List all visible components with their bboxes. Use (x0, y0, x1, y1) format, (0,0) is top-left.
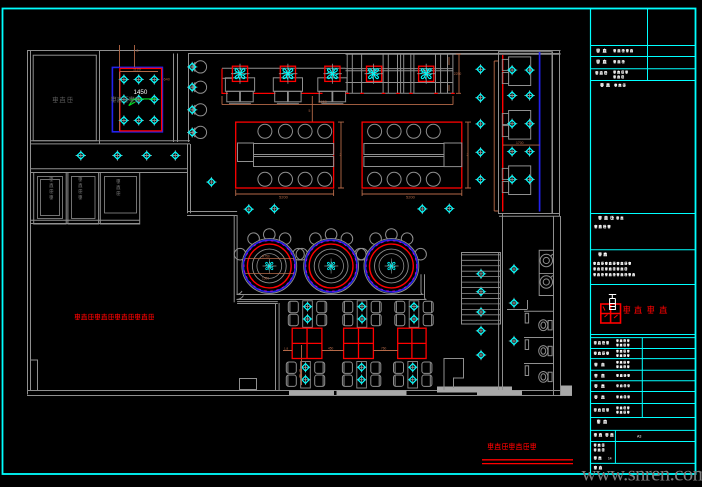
svg-text:2: 2 (340, 153, 342, 157)
svg-text:2250: 2250 (454, 72, 462, 76)
svg-text:1500: 1500 (262, 277, 269, 281)
svg-text:5200: 5200 (406, 195, 416, 200)
svg-text:1450: 1450 (134, 89, 148, 96)
svg-text:R750: R750 (262, 254, 270, 258)
svg-text:450: 450 (328, 347, 334, 351)
svg-text:1120: 1120 (133, 68, 141, 72)
svg-text:14: 14 (608, 457, 612, 461)
svg-text:2: 2 (467, 153, 469, 157)
svg-text:5: 5 (309, 109, 311, 113)
svg-text:www.snren.com: www.snren.com (582, 463, 702, 485)
svg-text:760: 760 (381, 347, 387, 351)
svg-text:A3: A3 (637, 434, 641, 438)
svg-text:640: 640 (164, 78, 170, 82)
svg-text:4150: 4150 (318, 99, 328, 104)
svg-text:5200: 5200 (279, 195, 289, 200)
svg-text:8: 8 (137, 49, 139, 53)
svg-text:1700: 1700 (516, 141, 524, 145)
svg-text:1.8: 1.8 (284, 347, 289, 351)
